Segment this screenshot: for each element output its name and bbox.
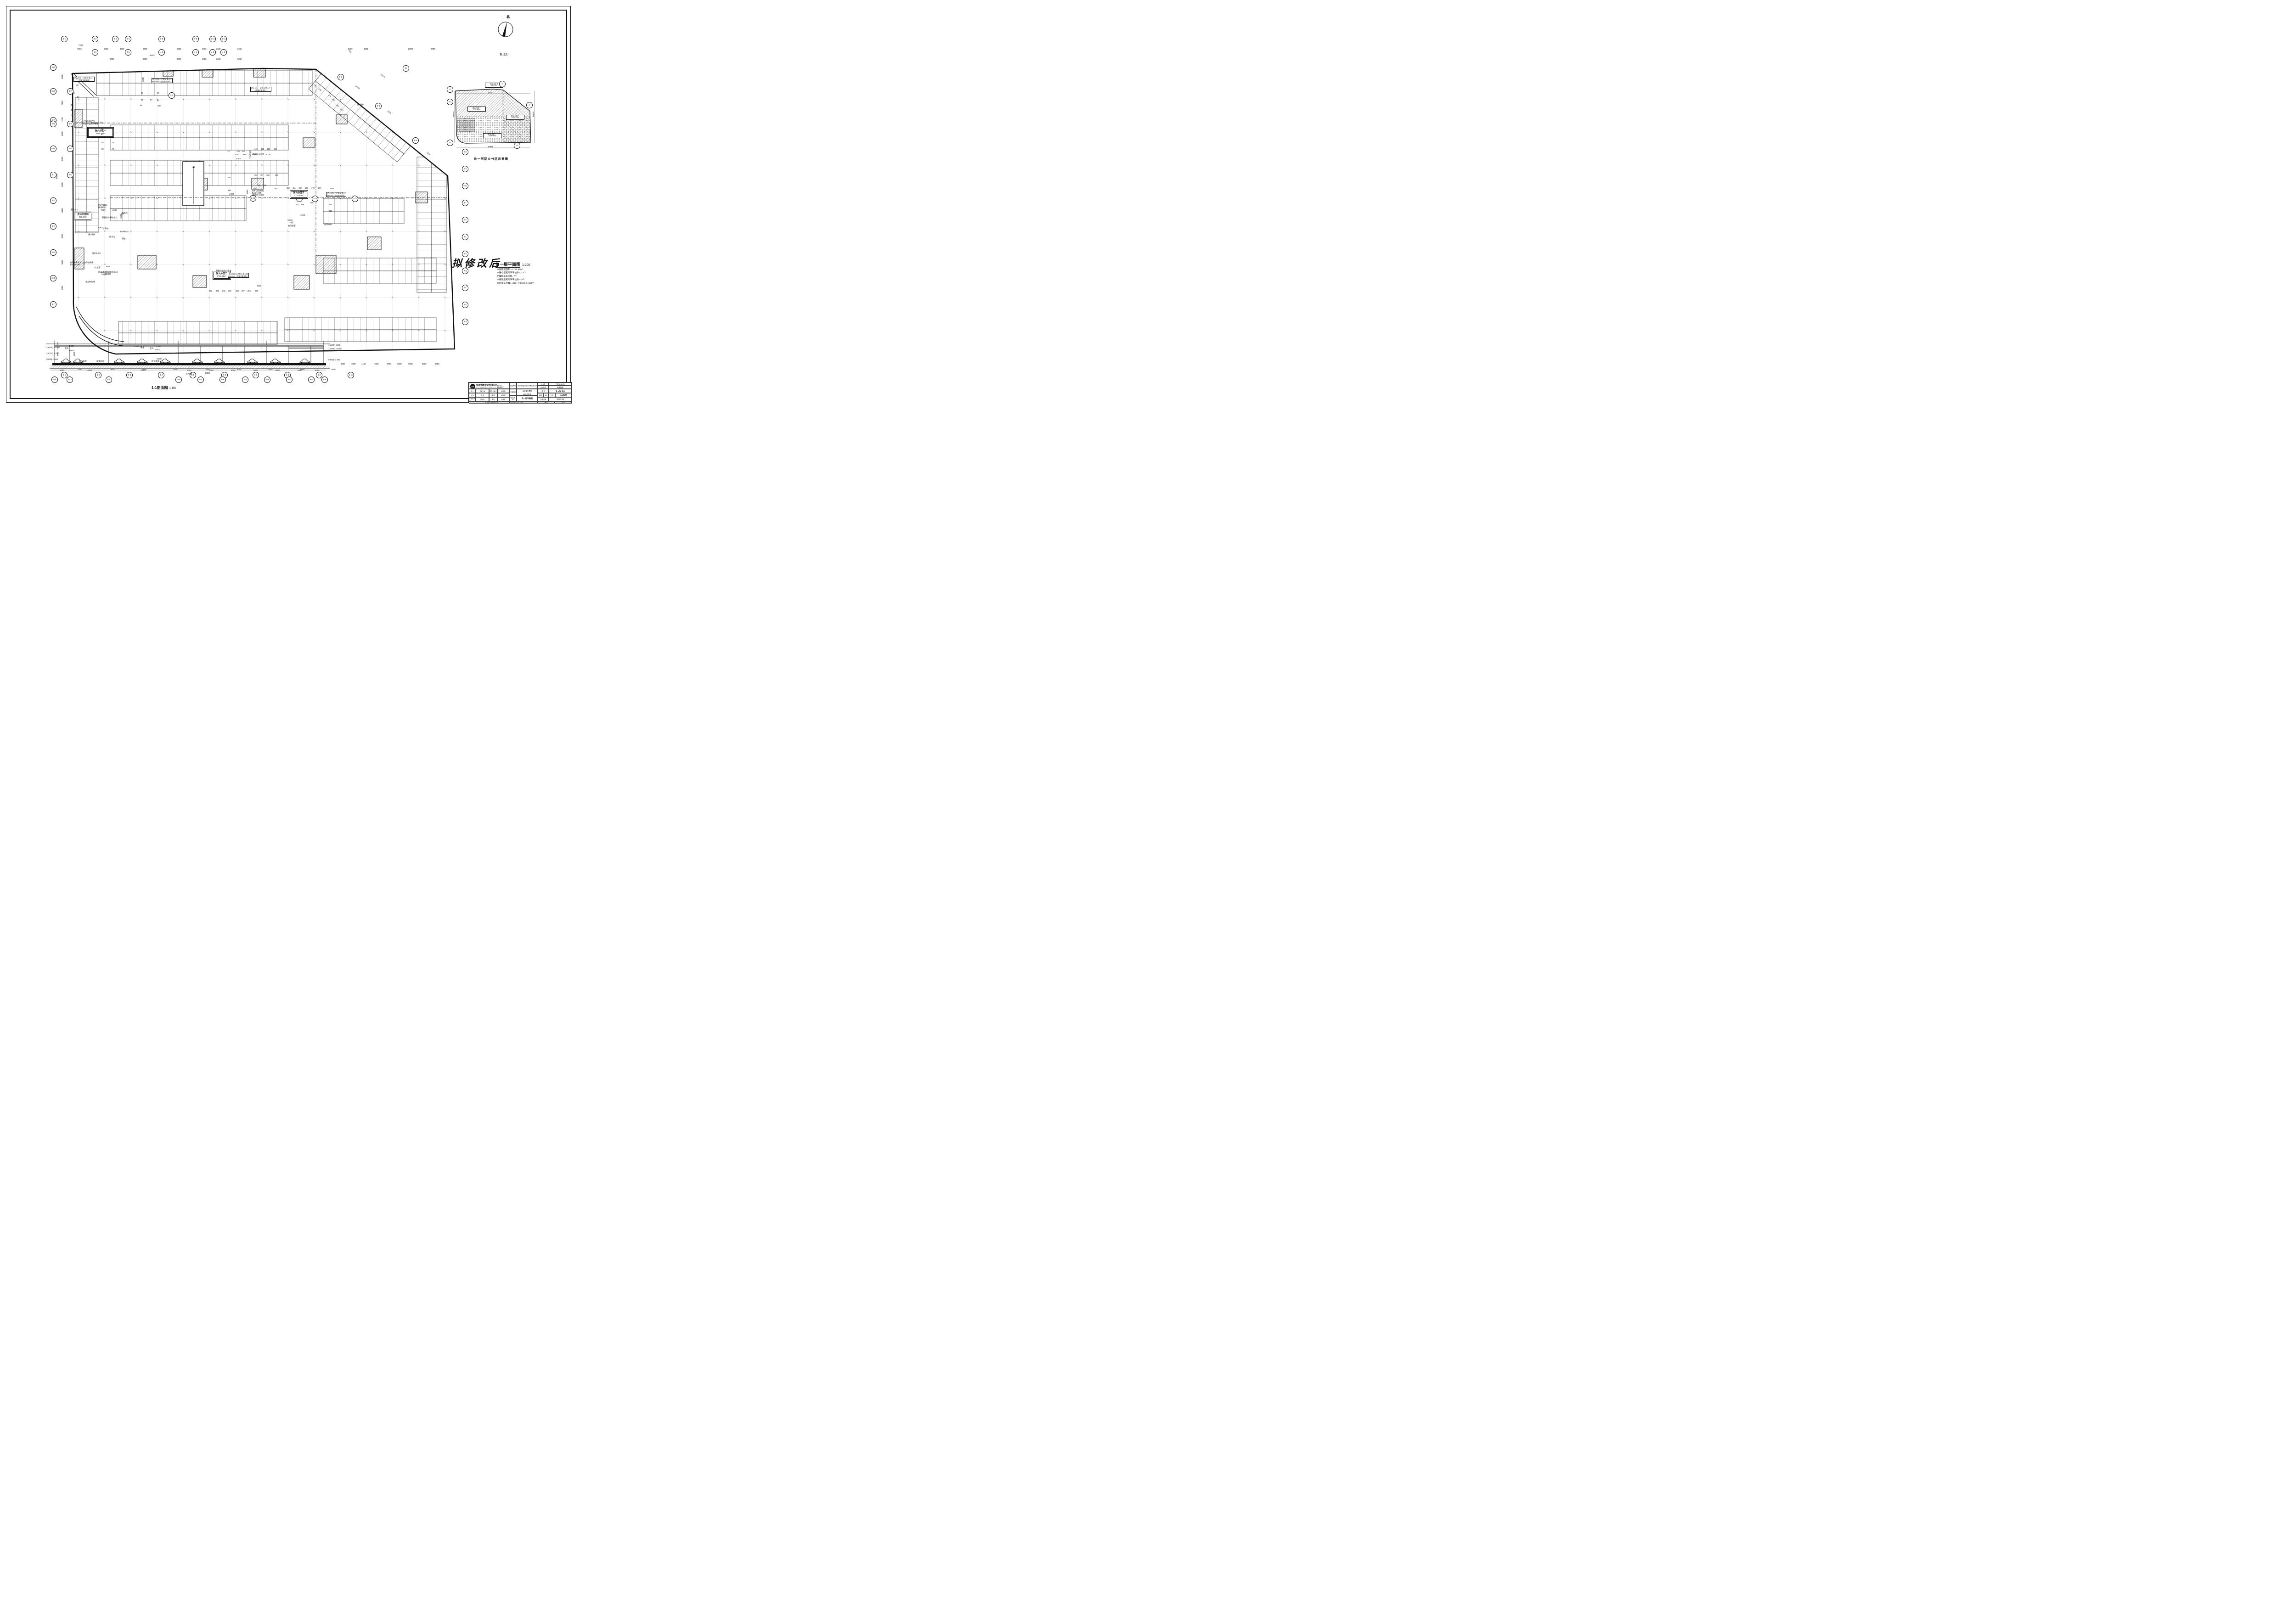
company-name-en: SOUTH CHINA CHUANGTU DESIGN CO.,LTD — [476, 387, 496, 388]
biz-label: 业务号 — [538, 382, 549, 386]
plan-notes: 本层建筑面积: 11783.99m²本层小型机动车车位数=313个无障碍车车位数… — [497, 268, 534, 285]
stage-label: 设计阶段 — [538, 386, 549, 389]
compass-needle — [502, 22, 507, 37]
compass-caption: 指北针 — [500, 52, 509, 56]
plan-interior — [69, 64, 459, 358]
plan-scale: 1:200 — [522, 264, 530, 267]
owner-value: 清远市永盛房地产开发有限公司 — [517, 382, 538, 389]
plan-note-line: 本层停车位数: =313+7+19X0.7=333个 — [497, 282, 534, 285]
section-title-block: 1-1剖面图1:150 — [152, 383, 176, 391]
compass-north-label: 北 — [506, 15, 510, 19]
plan-note-line: 本层小型机动车车位数=313个 — [497, 271, 534, 275]
date-label: 出图日期 — [538, 397, 549, 401]
project-label: 工程名称 — [509, 389, 517, 395]
plan-note-line: 本层建筑面积: 11783.99m² — [497, 268, 534, 271]
plan-title-block: 负一层平面图1:200 — [495, 260, 530, 268]
size-label: 规格 — [538, 393, 543, 397]
size-value: A0 — [543, 393, 549, 397]
staff-name: 梁锦源 — [476, 397, 489, 401]
staff-role: 专业负责人 — [469, 397, 476, 401]
page-label: 第 张 — [538, 401, 555, 404]
schematic-title: 负一层防火分区示意图 — [474, 156, 508, 161]
section-scale: 1:150 — [169, 387, 176, 390]
copyright-cn: 版权所有，不得复制、套用。 — [470, 402, 484, 404]
sheet-name-label: 图 纸 名 称 — [509, 395, 517, 401]
date-value: 2020.08 — [549, 397, 572, 401]
title-block: 创图 华南创图设计有限公司 SOUTH CHINA CHUANGTU DESIG… — [468, 382, 572, 403]
plan-linework — [0, 0, 574, 406]
company-logo: 创图 — [470, 384, 475, 389]
company-name: 华南创图设计有限公司 — [476, 384, 497, 387]
scale-value: 1:200 — [555, 393, 572, 397]
revision-heading: 拟修改后 — [452, 258, 501, 269]
staff-role: 项目负责人 — [489, 389, 497, 393]
plan-note-line: 无障碍车车位数=7个 — [497, 275, 534, 278]
owner-label: 建设单位 — [509, 382, 517, 389]
pages-label: 共 张 — [555, 401, 572, 404]
fire-zone-schematic — [455, 89, 535, 148]
staff-table: 设 计 司徒文侠 项目负责人 梁锦源 校 对 杨 健 审 核 梁锦源 专业负责人… — [469, 389, 509, 401]
drawing-no-label: 图 号 — [538, 389, 549, 393]
staff-role: 设 计 — [469, 389, 476, 393]
biz-value: P2018-11-26 — [549, 382, 572, 386]
staff-role: 审 核 — [489, 393, 497, 397]
project-name-1: 永盛文华里苑 — [517, 389, 537, 393]
staff-role: 校 对 — [469, 393, 476, 397]
drawing-no-value: 6-JS-01 — [549, 389, 572, 393]
staff-role: 审 定 — [489, 397, 497, 401]
revision-note: 拟修改后 — [452, 255, 501, 270]
section-title: 1-1剖面图 — [152, 386, 168, 390]
staff-name: 梁锦源 — [497, 393, 509, 397]
drawing-sheet: 6-16-26-36-46-66-86-106-114-14-24-34-44-… — [0, 0, 574, 406]
staff-name: 杨 健 — [476, 393, 489, 397]
staff-name: 司徒文侠 — [476, 389, 489, 393]
copyright-en: ALL RIGHTS RESERVED,DON'T COPIED,REPRODU… — [485, 402, 509, 404]
stage-value: 单体报建 — [549, 386, 572, 389]
approval-no-label: 施工图审查批准书编号 — [510, 402, 523, 404]
north-compass — [498, 22, 513, 37]
plan-title: 负一层平面图 — [495, 262, 520, 268]
staff-name: 梁锦源 — [497, 389, 509, 393]
scale-label: 比例 — [549, 393, 555, 397]
sheet-name-value: 负一层平面图 — [517, 395, 538, 401]
plan-note-line: 本层微型机动车车位数=19个 — [497, 278, 534, 281]
staff-name: 简荣基 — [497, 397, 509, 401]
